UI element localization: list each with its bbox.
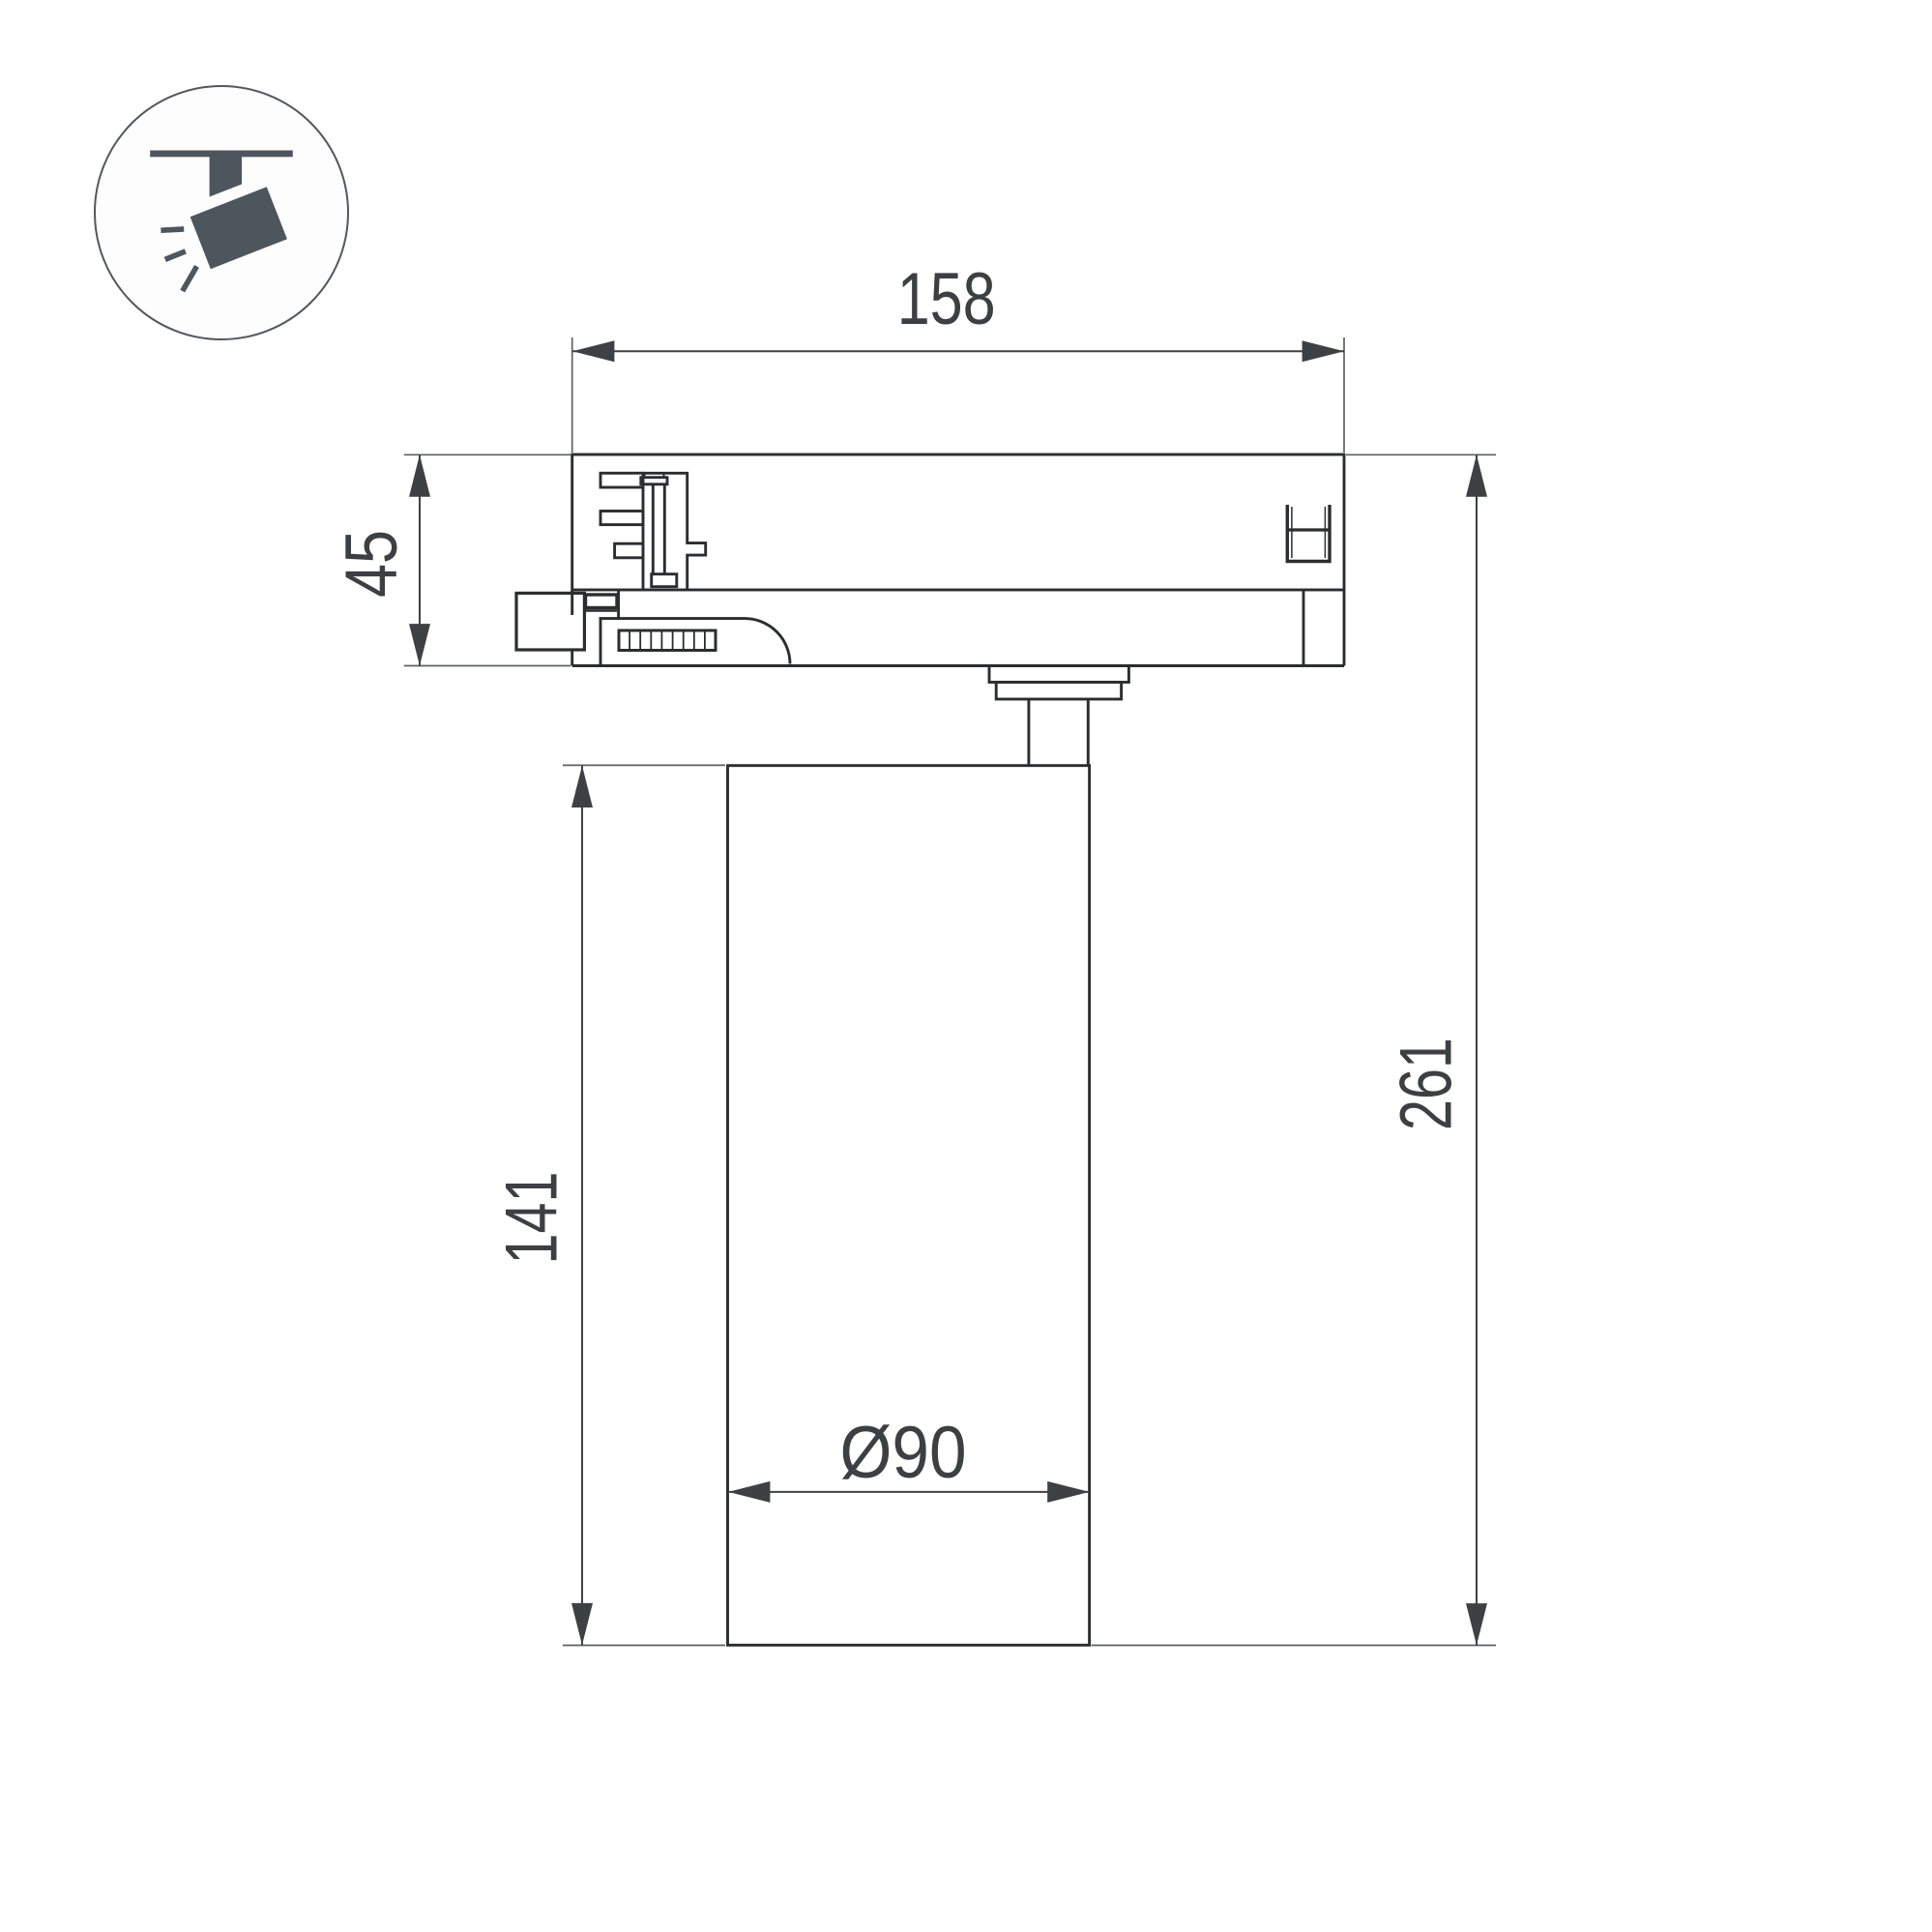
svg-text:158: 158 <box>897 258 996 340</box>
svg-text:261: 261 <box>1386 1038 1468 1130</box>
svg-text:Ø90: Ø90 <box>840 1412 967 1494</box>
svg-text:141: 141 <box>490 1172 572 1265</box>
svg-text:45: 45 <box>331 530 413 598</box>
